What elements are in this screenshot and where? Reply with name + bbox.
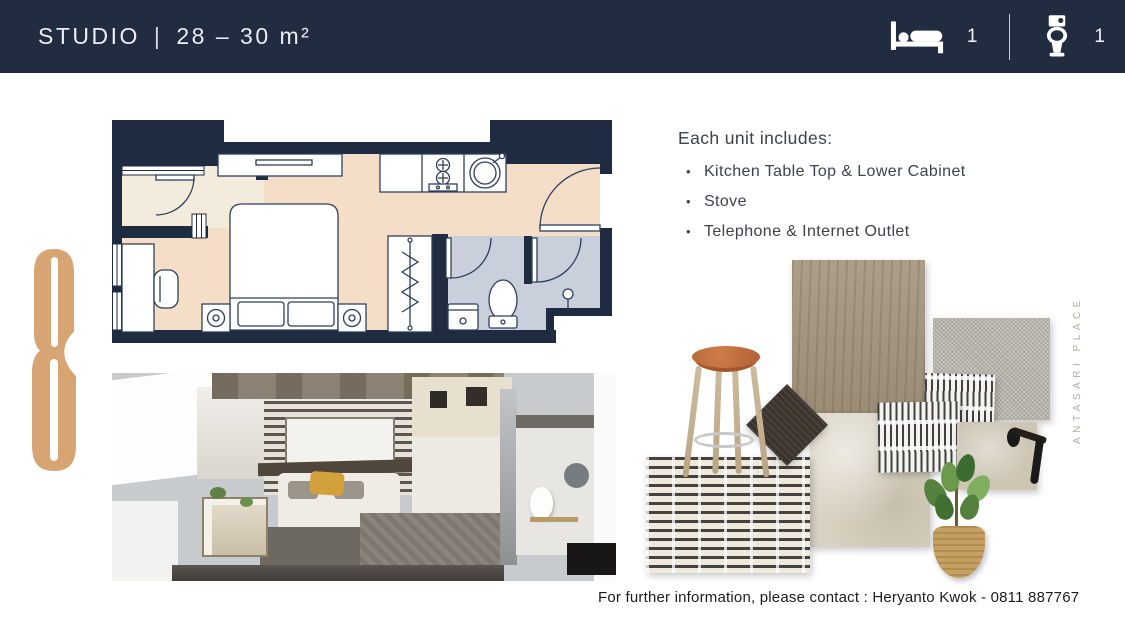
bullet-icon: • [686, 194, 691, 209]
swatch-wood-laminate [792, 260, 925, 413]
unit-stats: 1 1 [889, 0, 1105, 73]
brand-monogram [27, 247, 81, 473]
header-bar: STUDIO | 28 – 30 m² 1 [0, 0, 1125, 73]
title-separator: | [154, 23, 162, 50]
render-toilet [530, 487, 553, 519]
material-board [640, 250, 1060, 580]
includes-heading: Each unit includes: [678, 128, 966, 149]
render-range-hood [466, 387, 487, 406]
render-partition-wall [500, 389, 517, 565]
potted-plant [923, 450, 991, 580]
stats-divider [1009, 14, 1010, 60]
handle-grip [1030, 438, 1044, 485]
unit-area-label: 28 – 30 m² [176, 23, 311, 50]
render-floor-shadow [172, 565, 504, 581]
toilet-icon [1042, 15, 1072, 59]
stool-leg [732, 366, 742, 474]
stool-leg [712, 366, 722, 474]
bedroom-stat: 1 [889, 18, 978, 55]
list-item: • Kitchen Table Top & Lower Cabinet [686, 163, 966, 181]
bar-stool [690, 346, 762, 480]
brochure-slide: STUDIO | 28 – 30 m² 1 [0, 0, 1125, 633]
render-kitchen-wall [412, 437, 500, 513]
unit-type-label: STUDIO [38, 23, 140, 50]
bedroom-count: 1 [967, 26, 978, 48]
render-tile-floor [360, 513, 502, 569]
render-kitchen-cabinets [412, 377, 512, 437]
bullet-icon: • [686, 164, 691, 179]
render-figure [112, 373, 616, 581]
stool-footrest-ring [694, 432, 754, 448]
unit-includes: Each unit includes: • Kitchen Table Top … [678, 128, 966, 253]
page-title: STUDIO | 28 – 30 m² [38, 0, 311, 73]
render-mirror [564, 463, 589, 488]
stool-leg [682, 366, 702, 478]
project-watermark: ANTASARI PLACE [1072, 262, 1083, 444]
bathroom-count: 1 [1094, 26, 1105, 48]
render-bathroom [516, 428, 594, 555]
include-item-label: Stove [704, 193, 747, 211]
render-plant [210, 487, 226, 499]
include-item-label: Telephone & Internet Outlet [704, 223, 910, 241]
contact-info: For further information, please contact … [598, 589, 1079, 606]
stool-seat [692, 346, 760, 368]
render-sofa-bench [202, 497, 268, 557]
plant-basket [933, 526, 985, 578]
bed-icon [889, 18, 945, 55]
list-item: • Telephone & Internet Outlet [686, 223, 966, 241]
include-item-label: Kitchen Table Top & Lower Cabinet [704, 163, 966, 181]
render-plant [240, 497, 253, 507]
list-item: • Stove [686, 193, 966, 211]
floor-plan-figure [112, 118, 612, 350]
render-shelf [530, 517, 578, 522]
render-stove [430, 391, 447, 408]
render-window-light [112, 501, 178, 581]
bathroom-stat: 1 [1042, 15, 1105, 59]
render-accent-pillow [309, 471, 345, 496]
render-dark-recess [567, 543, 616, 575]
bullet-icon: • [686, 224, 691, 239]
